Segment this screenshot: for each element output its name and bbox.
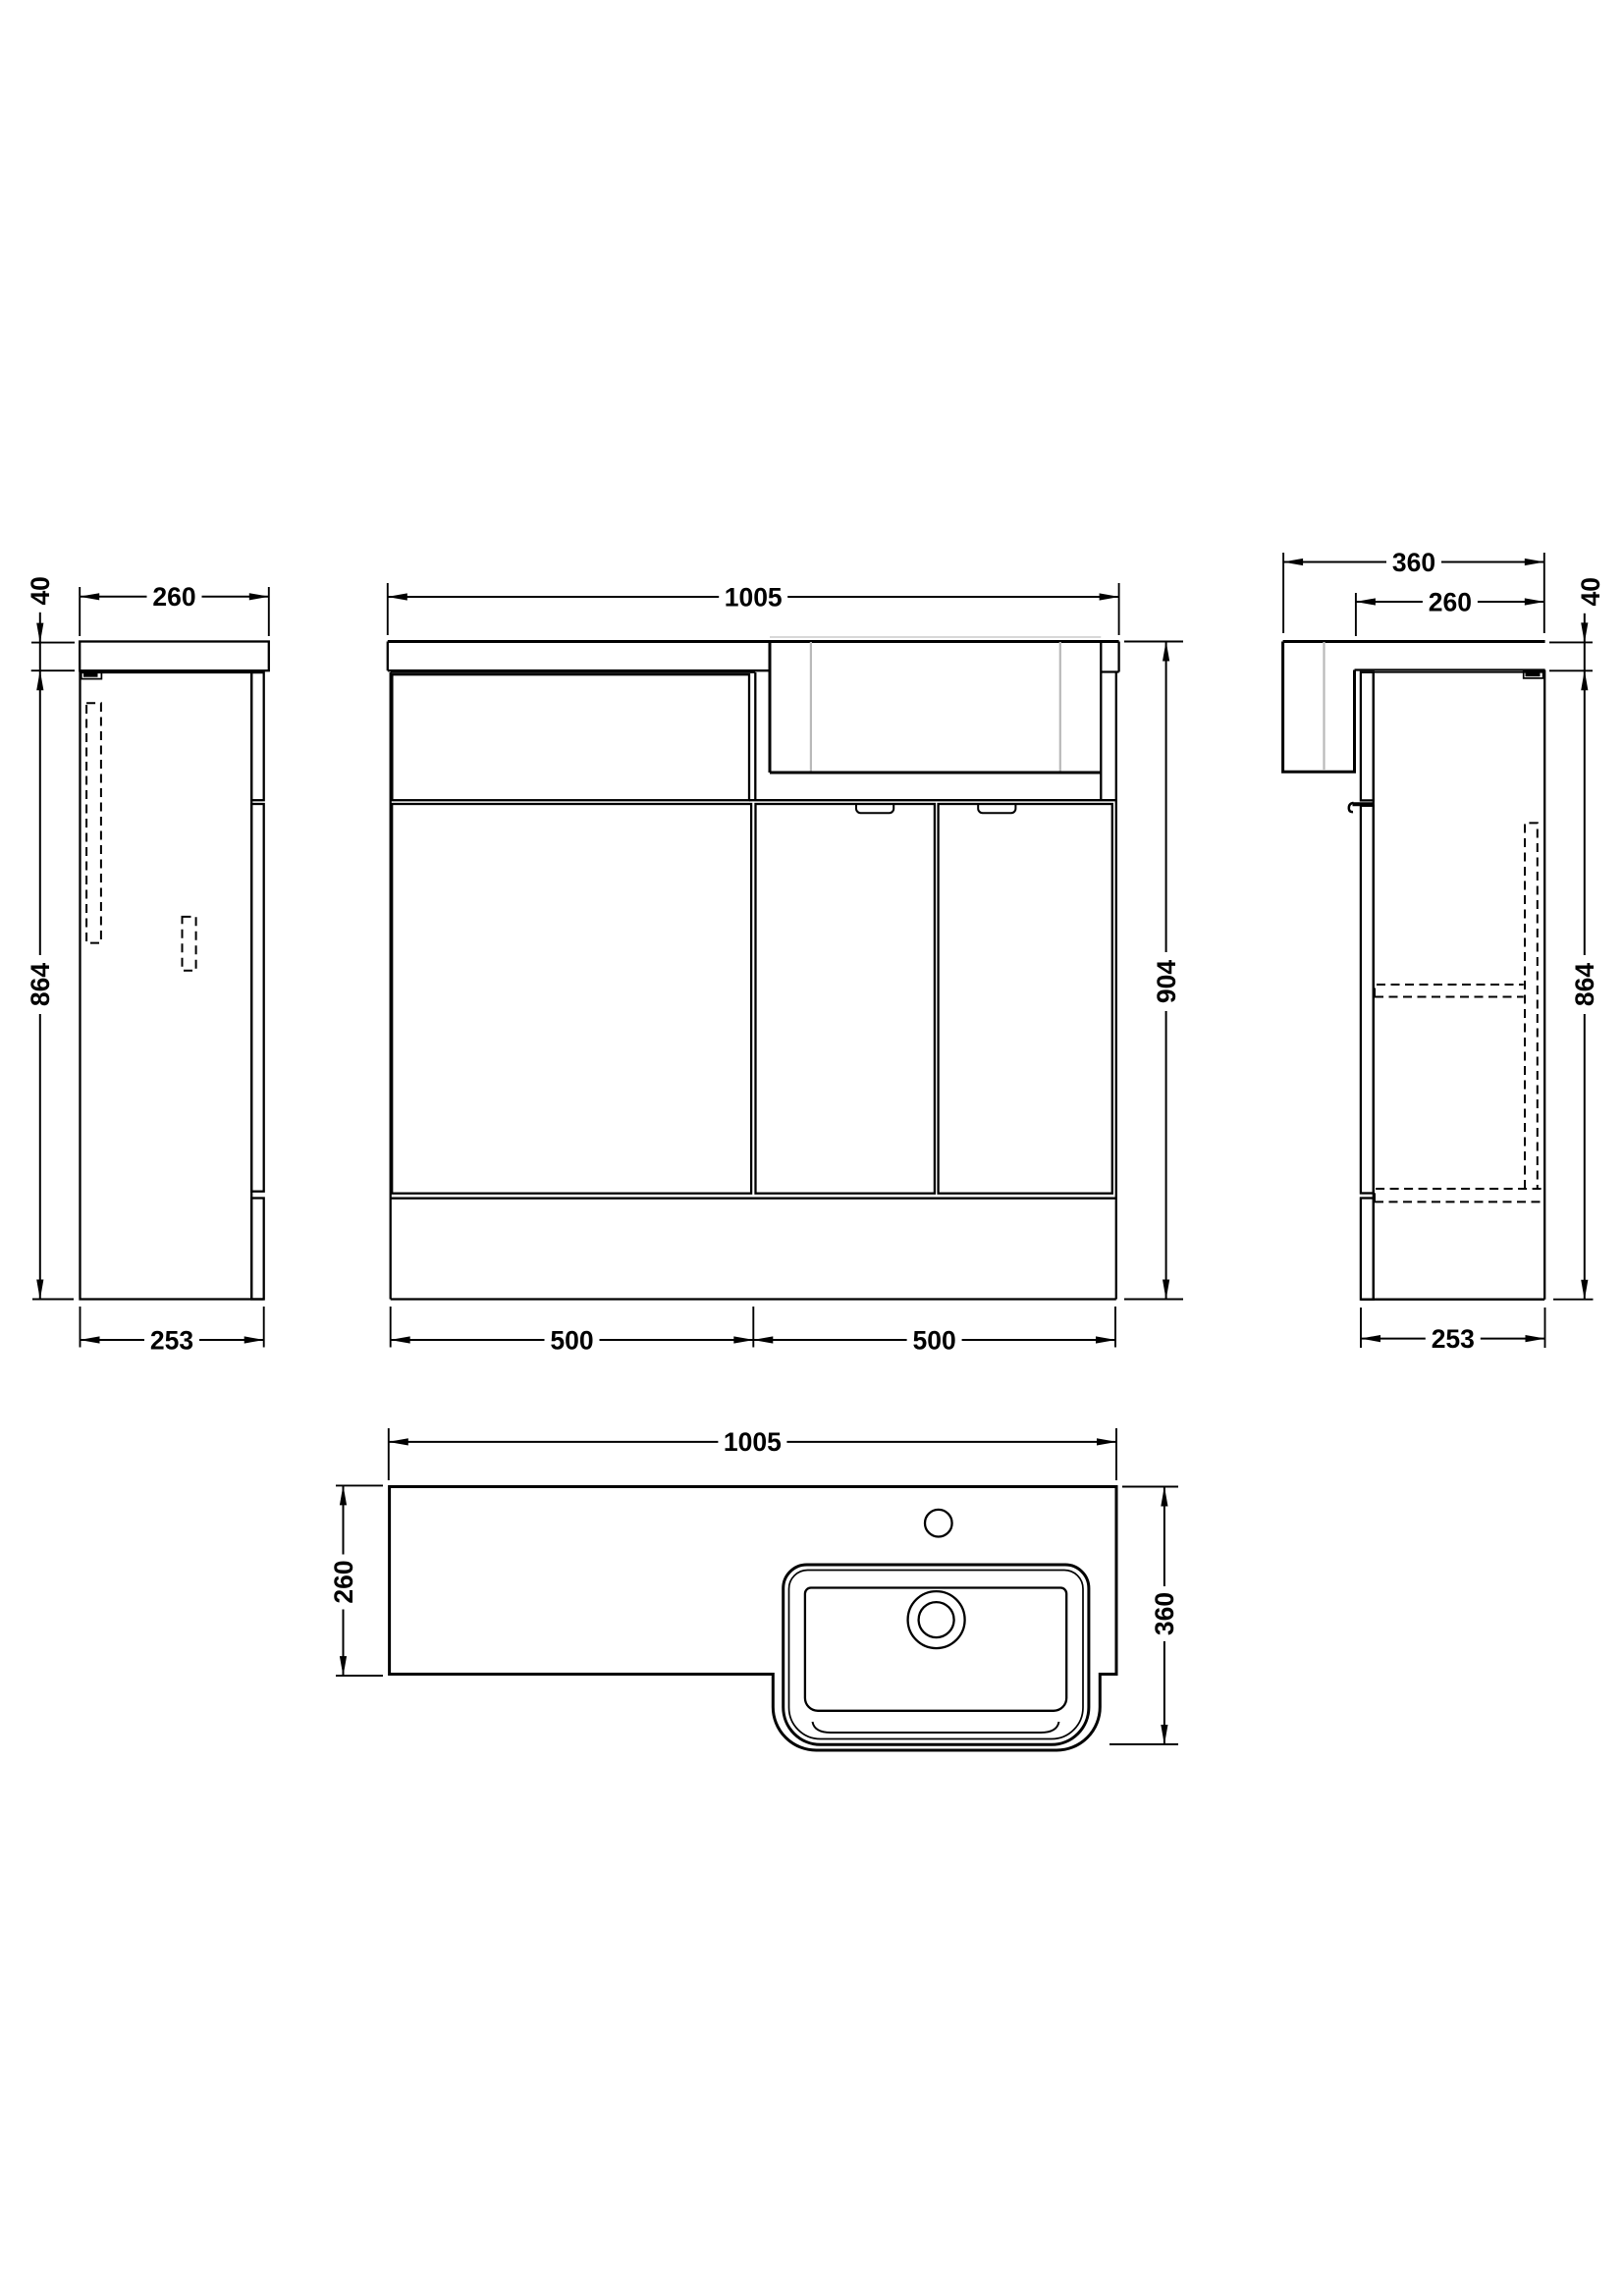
svg-text:260: 260 bbox=[152, 582, 195, 612]
svg-text:1005: 1005 bbox=[725, 582, 783, 612]
svg-text:40: 40 bbox=[26, 576, 55, 605]
svg-text:253: 253 bbox=[150, 1325, 193, 1355]
svg-text:253: 253 bbox=[1432, 1324, 1475, 1354]
svg-text:864: 864 bbox=[26, 963, 55, 1006]
svg-text:260: 260 bbox=[1429, 587, 1472, 616]
svg-text:904: 904 bbox=[1152, 960, 1181, 1003]
svg-text:500: 500 bbox=[912, 1325, 955, 1355]
svg-text:260: 260 bbox=[329, 1560, 358, 1603]
svg-text:360: 360 bbox=[1392, 548, 1435, 577]
svg-text:500: 500 bbox=[550, 1325, 593, 1355]
svg-text:40: 40 bbox=[1576, 577, 1605, 606]
svg-text:864: 864 bbox=[1570, 963, 1599, 1006]
svg-text:360: 360 bbox=[1150, 1592, 1179, 1635]
svg-text:1005: 1005 bbox=[724, 1427, 782, 1457]
